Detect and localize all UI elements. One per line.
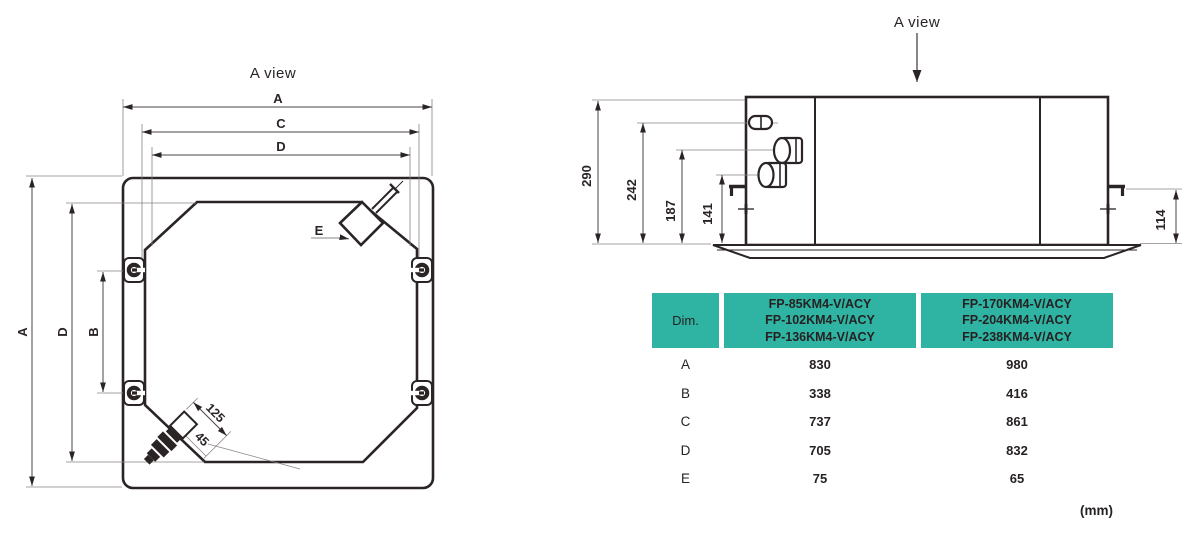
right-view: A view [579, 14, 1182, 258]
dim-A-left [26, 176, 122, 487]
table-row-e-dim: E [652, 467, 719, 491]
left-view-title: A view [250, 65, 296, 82]
right-view-title: A view [894, 14, 940, 31]
table-row-b-dim: B [652, 381, 719, 405]
unit-note: (mm) [1030, 503, 1113, 518]
table-row-a-large: 980 [921, 353, 1113, 377]
dim-label-e: E [315, 223, 324, 238]
dim-label-187: 187 [663, 200, 678, 222]
refrigerant-pipe-large [774, 138, 802, 163]
table-row-e-small: 75 [724, 467, 916, 491]
dim-label-a-top: A [273, 91, 283, 106]
table-row-d-large: 832 [921, 438, 1113, 462]
table-row-c-dim: C [652, 410, 719, 434]
table-row-a-small: 830 [724, 353, 916, 377]
left-view: A view A C D A [15, 65, 433, 489]
table-row-c-large: 861 [921, 410, 1113, 434]
table-row-d-dim: D [652, 438, 719, 462]
table-header-models-small: FP-85KM4-V/ACY FP-102KM4-V/ACY FP-136KM4… [724, 293, 916, 348]
table-header-dim: Dim. [652, 293, 719, 348]
decoration-panel-side [713, 245, 1141, 258]
unit-body-side [746, 97, 1108, 245]
dim-label-c-top: C [276, 116, 286, 131]
dimension-table: Dim. FP-85KM4-V/ACY FP-102KM4-V/ACY FP-1… [652, 293, 1113, 491]
dim-A-top [123, 99, 432, 176]
table-header-models-large: FP-170KM4-V/ACY FP-204KM4-V/ACY FP-238KM… [921, 293, 1113, 348]
refrigerant-pipe-small [759, 163, 787, 187]
dim-label-290: 290 [579, 165, 594, 187]
dim-label-d-top: D [276, 139, 285, 154]
dim-label-a-left: A [15, 327, 30, 337]
table-row-c-small: 737 [724, 410, 916, 434]
dim-B-left [97, 271, 124, 393]
dim-label-114: 114 [1153, 209, 1168, 231]
table-row-e-large: 65 [921, 467, 1113, 491]
table-row-b-large: 416 [921, 381, 1113, 405]
dim-label-b-left: B [86, 327, 101, 336]
table-row-b-small: 338 [724, 381, 916, 405]
table-row-d-small: 705 [724, 438, 916, 462]
technical-drawing-page: { "drawing": { "left_view": { "title": "… [0, 0, 1200, 543]
dim-label-242: 242 [624, 179, 639, 201]
drain-pipe [749, 116, 772, 129]
dim-label-141: 141 [700, 203, 715, 225]
dim-label-d-left: D [55, 327, 70, 336]
table-row-a-dim: A [652, 353, 719, 377]
